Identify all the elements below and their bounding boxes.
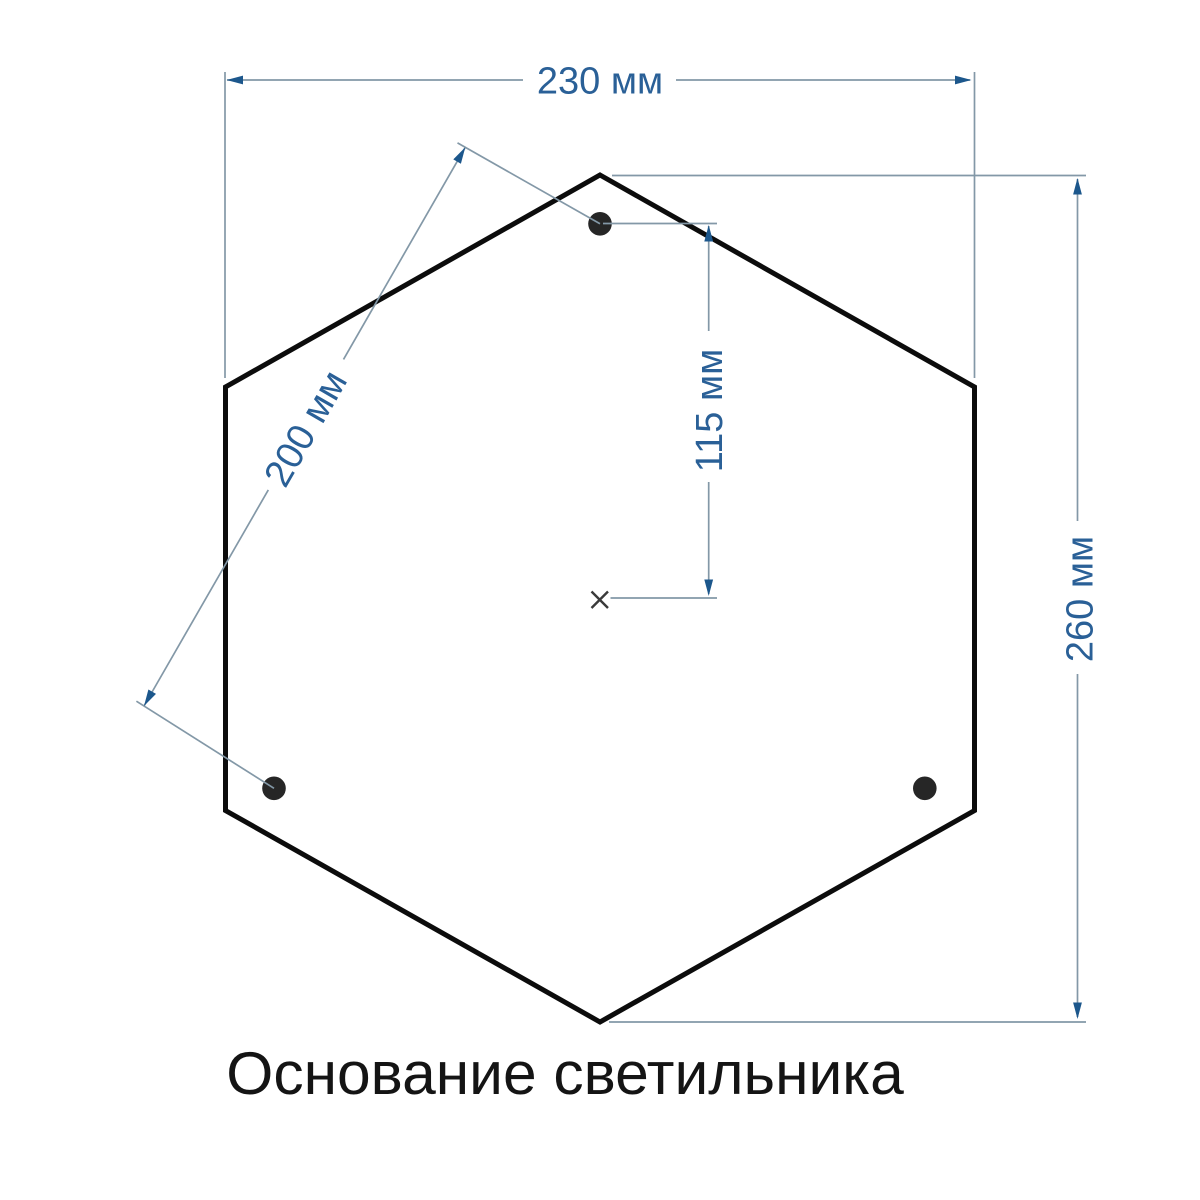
svg-text:115 мм: 115 мм: [689, 349, 731, 472]
svg-text:230 мм: 230 мм: [537, 61, 663, 103]
svg-text:260 мм: 260 мм: [1060, 536, 1102, 662]
svg-text:Основание светильника: Основание светильника: [226, 1039, 904, 1107]
